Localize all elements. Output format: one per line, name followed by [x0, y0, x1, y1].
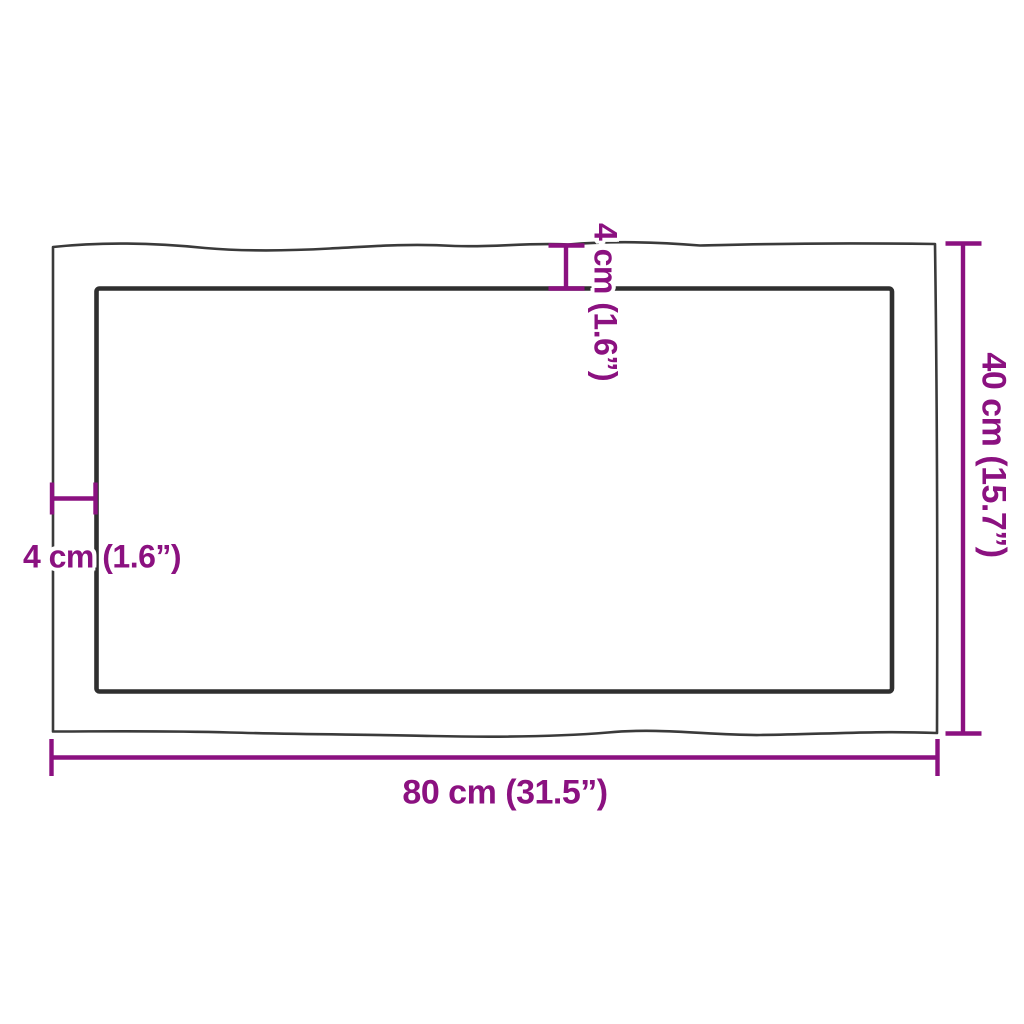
inner-board-outline: [97, 289, 893, 692]
edge-thickness-marker-top: [549, 246, 585, 289]
width-dimension: [52, 739, 938, 776]
width-dimension-label: 80 cm (31.5”): [402, 774, 607, 813]
dimension-diagram: 80 cm (31.5”) 40 cm (15.7”) 4 cm (1.6”) …: [0, 0, 1024, 1024]
edge-thickness-label-left: 4 cm (1.6”): [23, 539, 181, 576]
edge-thickness-label-top: 4 cm (1.6”): [587, 223, 624, 381]
height-dimension-label: 40 cm (15.7”): [974, 352, 1013, 557]
edge-thickness-marker-left: [52, 483, 96, 515]
outer-live-edge-outline: [53, 242, 937, 737]
diagram-canvas: [0, 0, 1024, 1024]
